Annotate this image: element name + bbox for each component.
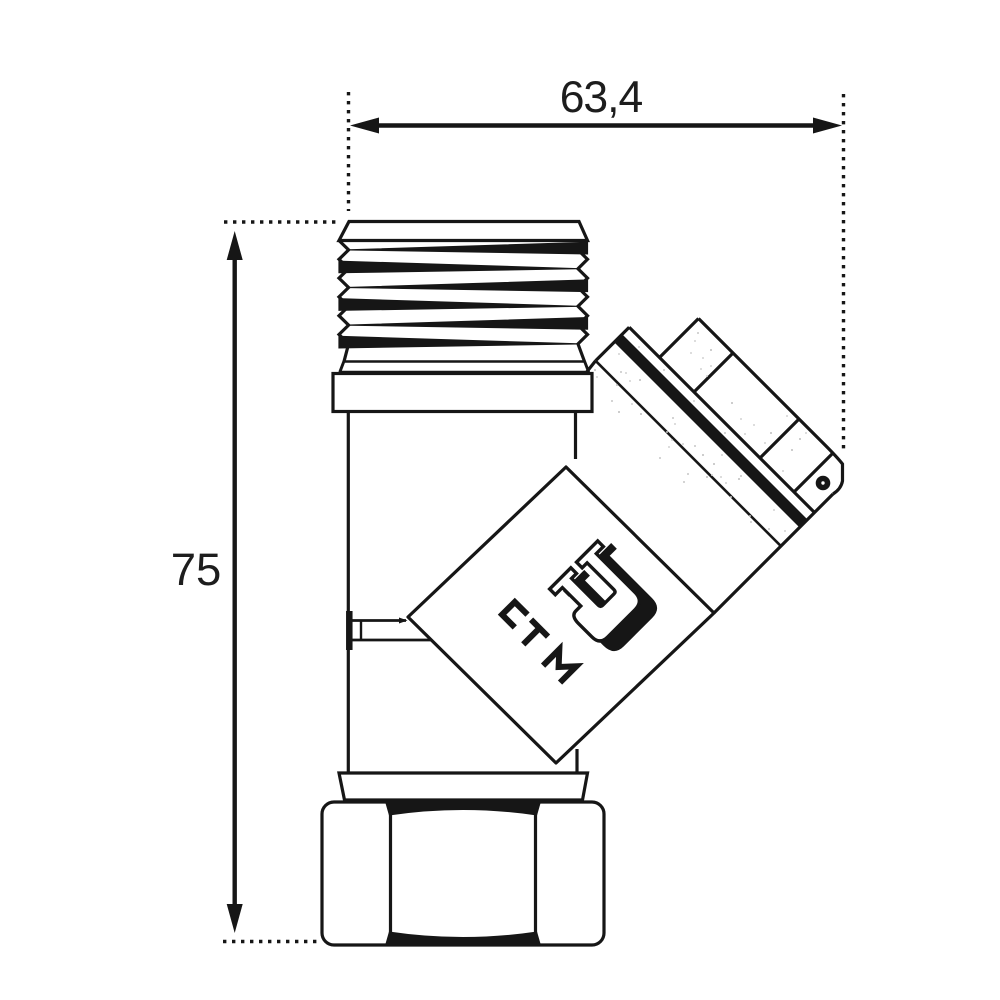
svg-text:63,4: 63,4 [560, 73, 643, 122]
svg-text:75: 75 [171, 544, 222, 595]
